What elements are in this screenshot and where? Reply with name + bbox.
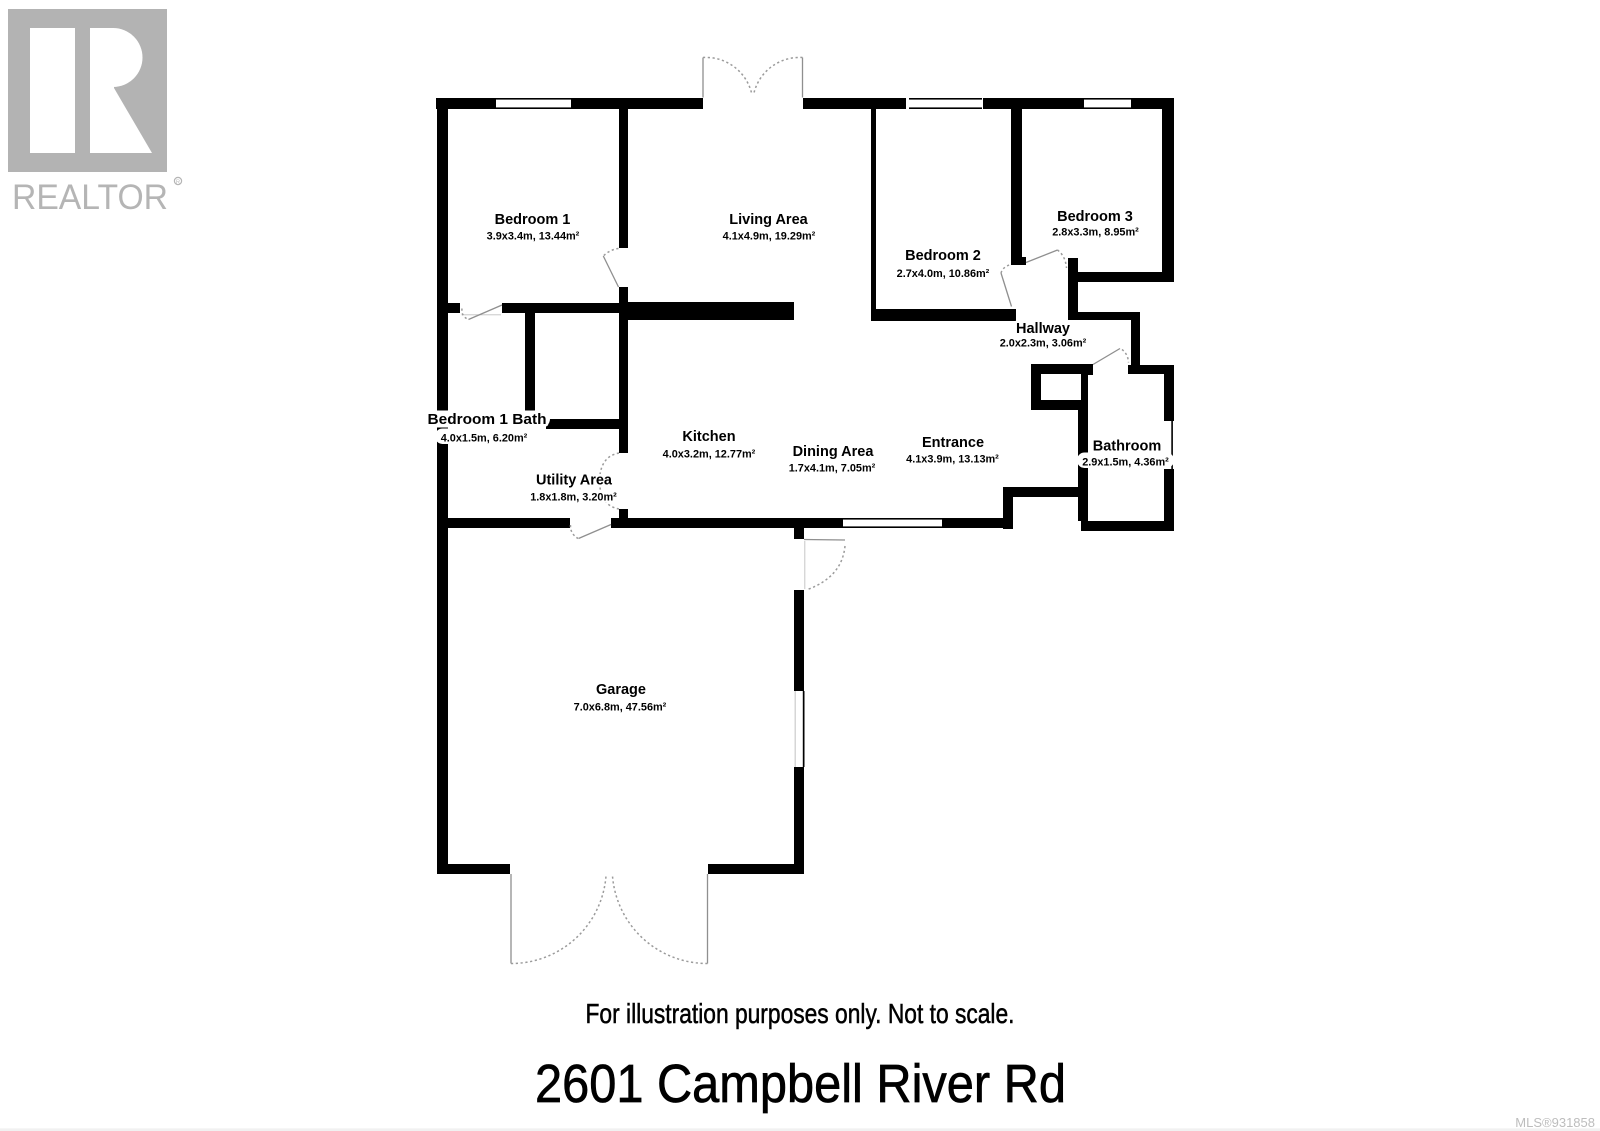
svg-text:7.0x6.8m, 47.56m²: 7.0x6.8m, 47.56m² <box>574 702 667 714</box>
svg-text:4.0x3.2m, 12.77m²: 4.0x3.2m, 12.77m² <box>663 449 756 461</box>
svg-text:Bedroom 3: Bedroom 3 <box>1057 209 1133 225</box>
svg-text:Garage: Garage <box>596 682 646 698</box>
svg-text:2.0x2.3m, 3.06m²: 2.0x2.3m, 3.06m² <box>1000 338 1087 350</box>
svg-text:MLS®931858: MLS®931858 <box>1515 1115 1595 1130</box>
svg-text:4.1x4.9m, 19.29m²: 4.1x4.9m, 19.29m² <box>723 231 816 243</box>
svg-text:Bedroom 2: Bedroom 2 <box>905 248 981 264</box>
svg-text:2.7x4.0m, 10.86m²: 2.7x4.0m, 10.86m² <box>897 268 990 280</box>
svg-text:1.8x1.8m, 3.20m²: 1.8x1.8m, 3.20m² <box>530 492 617 504</box>
svg-text:Hallway: Hallway <box>1016 321 1070 337</box>
svg-text:Bedroom 1: Bedroom 1 <box>495 212 571 228</box>
svg-text:4.0x1.5m, 6.20m²: 4.0x1.5m, 6.20m² <box>441 433 528 445</box>
svg-text:2.8x3.3m, 8.95m²: 2.8x3.3m, 8.95m² <box>1052 227 1139 239</box>
svg-text:R: R <box>176 180 180 186</box>
svg-text:1.7x4.1m, 7.05m²: 1.7x4.1m, 7.05m² <box>789 463 876 475</box>
svg-text:REALTOR: REALTOR <box>12 177 168 217</box>
svg-text:For illustration purposes only: For illustration purposes only. Not to s… <box>586 998 1015 1029</box>
svg-text:Living Area: Living Area <box>729 212 808 228</box>
svg-text:Bedroom 1 Bath: Bedroom 1 Bath <box>428 412 547 428</box>
svg-text:4.1x3.9m, 13.13m²: 4.1x3.9m, 13.13m² <box>906 454 999 466</box>
svg-text:Entrance: Entrance <box>922 435 984 451</box>
svg-text:Utility Area: Utility Area <box>536 473 613 489</box>
svg-text:Kitchen: Kitchen <box>682 429 735 445</box>
svg-text:2601 Campbell River Rd: 2601 Campbell River Rd <box>535 1055 1066 1114</box>
svg-text:2.9x1.5m, 4.36m²: 2.9x1.5m, 4.36m² <box>1082 457 1169 469</box>
svg-text:Bathroom: Bathroom <box>1093 439 1161 455</box>
svg-text:Dining Area: Dining Area <box>793 444 875 460</box>
svg-text:3.9x3.4m, 13.44m²: 3.9x3.4m, 13.44m² <box>487 231 580 243</box>
